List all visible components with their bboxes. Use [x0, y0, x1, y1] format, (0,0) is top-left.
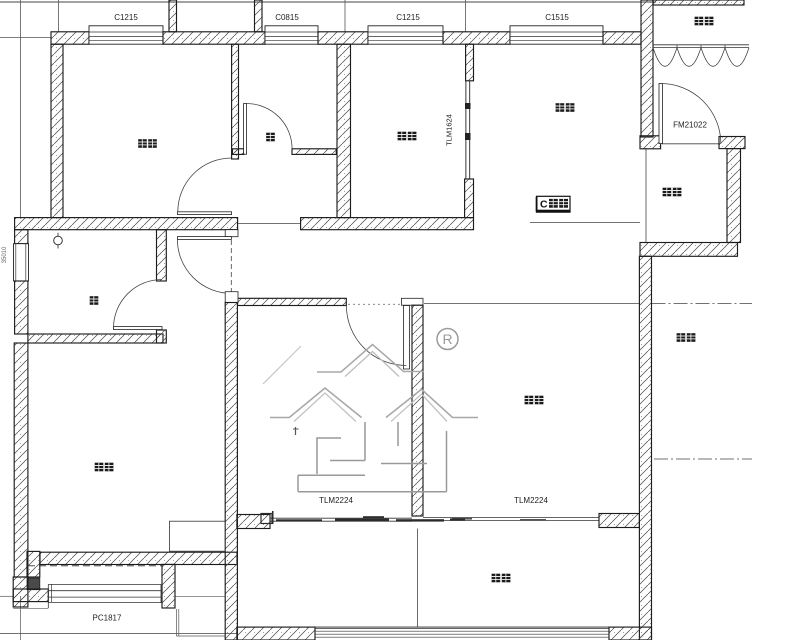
svg-text:TLM2224: TLM2224 [319, 496, 353, 505]
svg-text:35010: 35010 [2, 246, 8, 263]
svg-text:C: C [540, 199, 548, 211]
svg-text:TLM1624: TLM1624 [445, 114, 454, 146]
svg-text:C0815: C0815 [275, 13, 299, 22]
svg-text:TLM2224: TLM2224 [514, 496, 548, 505]
svg-text:PC1817: PC1817 [93, 614, 122, 623]
svg-text:C1515: C1515 [545, 13, 569, 22]
svg-text:C1215: C1215 [114, 13, 138, 22]
svg-text:FM21022: FM21022 [673, 121, 707, 130]
svg-text:C1215: C1215 [396, 13, 420, 22]
svg-text:R: R [442, 331, 452, 347]
